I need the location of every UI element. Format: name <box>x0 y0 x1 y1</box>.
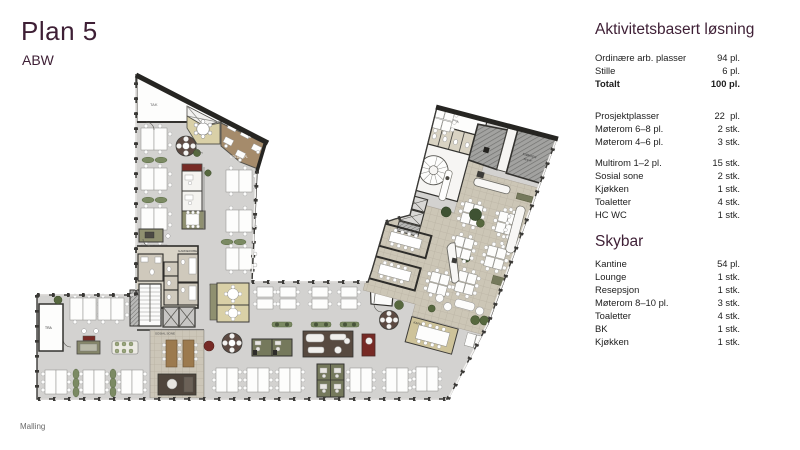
svg-text:SOSIAL SONE: SOSIAL SONE <box>155 332 175 336</box>
svg-text:GARDEROBE: GARDEROBE <box>178 249 197 253</box>
svg-text:TAK: TAK <box>150 102 158 107</box>
svg-text:TRA: TRA <box>45 326 53 330</box>
